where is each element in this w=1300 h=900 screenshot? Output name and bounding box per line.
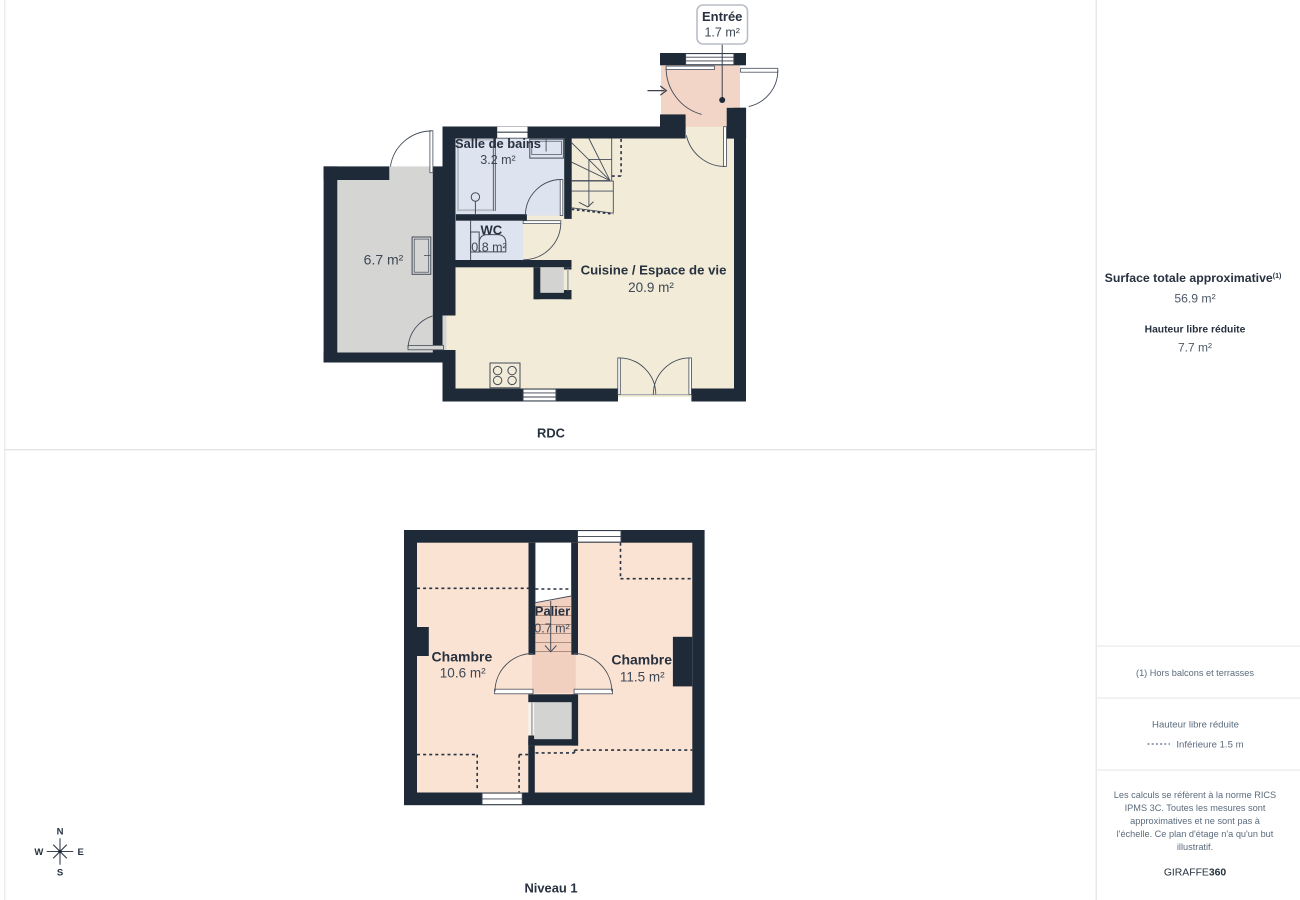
svg-text:Surface totale approximative(1: Surface totale approximative(1)	[1105, 271, 1282, 285]
svg-text:approximatives et ne sont pas: approximatives et ne sont pas à	[1130, 816, 1261, 826]
svg-text:Niveau 1: Niveau 1	[524, 881, 577, 896]
svg-text:Chambre: Chambre	[432, 649, 493, 665]
svg-text:(1) Hors balcons et terrasses: (1) Hors balcons et terrasses	[1136, 668, 1254, 678]
svg-text:Hauteur libre réduite: Hauteur libre réduite	[1145, 325, 1246, 336]
svg-text:IPMS 3C. Toutes les mesures so: IPMS 3C. Toutes les mesures sont	[1125, 803, 1266, 813]
svg-text:3.2 m²: 3.2 m²	[480, 153, 515, 167]
svg-text:56.9 m²: 56.9 m²	[1174, 292, 1215, 306]
svg-text:1.7 m²: 1.7 m²	[704, 26, 739, 40]
svg-text:S: S	[57, 868, 63, 879]
svg-text:0.7 m²: 0.7 m²	[534, 622, 569, 636]
svg-text:l'échelle. Ce plan d'étage n'a: l'échelle. Ce plan d'étage n'a qu'un but	[1117, 829, 1274, 839]
svg-text:Cuisine / Espace de vie: Cuisine / Espace de vie	[581, 263, 727, 278]
svg-text:E: E	[78, 847, 84, 858]
svg-text:GIRAFFE360: GIRAFFE360	[1164, 868, 1227, 879]
svg-text:W: W	[34, 847, 43, 858]
svg-text:RDC: RDC	[537, 426, 565, 441]
svg-text:Chambre: Chambre	[611, 652, 672, 668]
svg-text:20.9 m²: 20.9 m²	[628, 280, 674, 295]
svg-text:6.7 m²: 6.7 m²	[364, 252, 404, 268]
svg-text:7.7 m²: 7.7 m²	[1178, 341, 1212, 355]
svg-text:10.6 m²: 10.6 m²	[440, 666, 486, 681]
svg-text:Salle de bains: Salle de bains	[455, 136, 541, 151]
svg-text:11.5 m²: 11.5 m²	[620, 670, 665, 685]
svg-text:Inférieure 1.5 m: Inférieure 1.5 m	[1176, 740, 1243, 751]
svg-text:0.8 m²: 0.8 m²	[471, 241, 506, 255]
svg-text:Entrée: Entrée	[702, 9, 742, 24]
svg-text:illustratif.: illustratif.	[1177, 842, 1213, 852]
svg-text:N: N	[57, 827, 64, 838]
svg-text:WC: WC	[480, 223, 502, 238]
svg-text:Hauteur libre réduite: Hauteur libre réduite	[1152, 720, 1239, 731]
svg-text:Palier: Palier	[535, 604, 570, 619]
svg-text:Les calculs se réfèrent à la n: Les calculs se réfèrent à la norme RICS	[1114, 790, 1276, 800]
